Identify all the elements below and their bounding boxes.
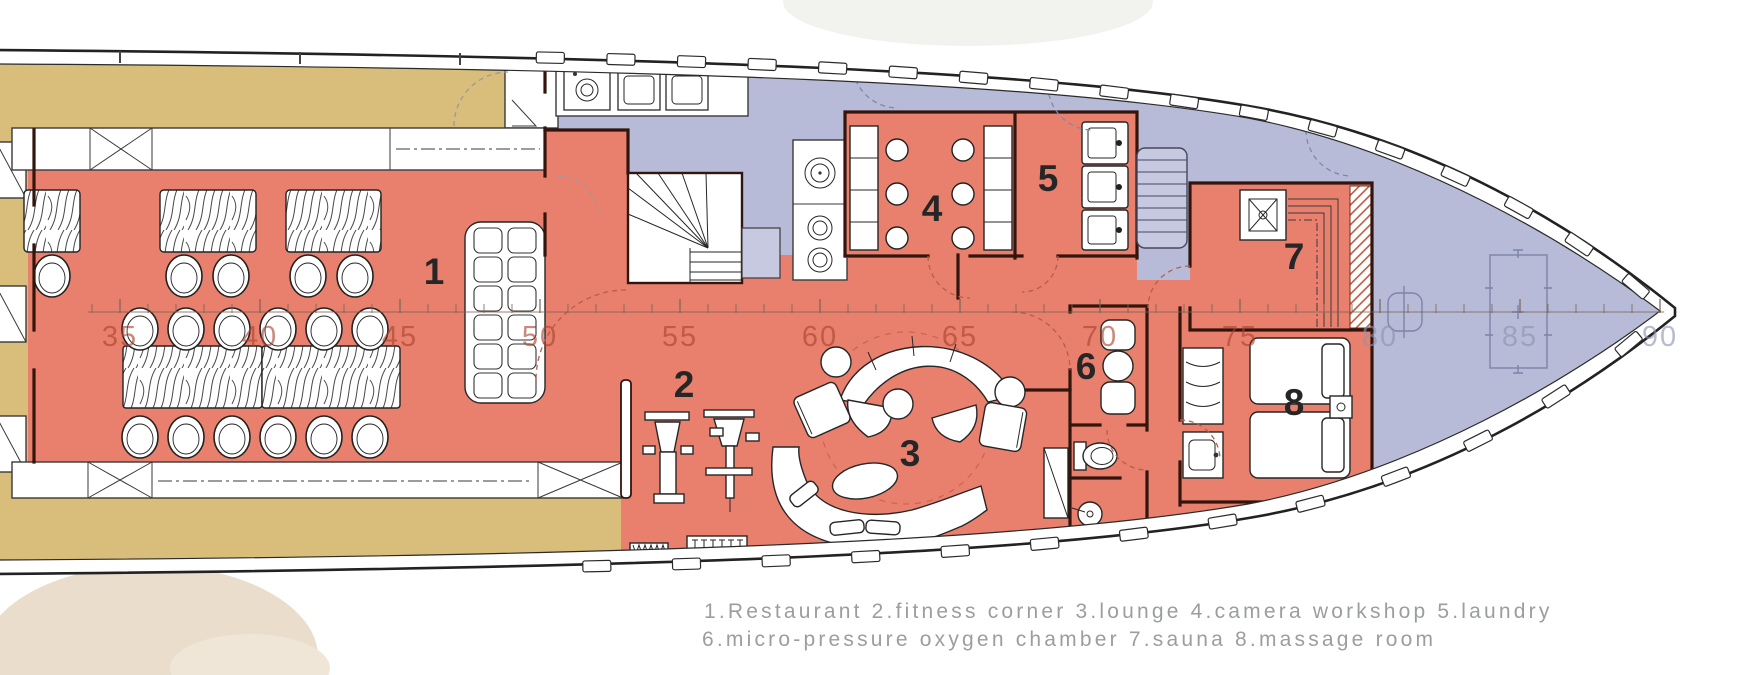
stool: [952, 227, 974, 249]
buffet-seat: [474, 257, 502, 282]
wardrobe: [1183, 348, 1223, 424]
ruler-number-85: 85: [1502, 321, 1538, 353]
nightstand: [1330, 396, 1352, 418]
stool: [886, 227, 908, 249]
dining-chair: [213, 255, 249, 297]
hull-window: [672, 558, 700, 570]
hull-window: [583, 560, 611, 572]
restaurant-top-cabinets: [12, 128, 545, 170]
workshop-table: [850, 126, 878, 250]
pouf: [883, 389, 913, 419]
recliner-seat: [1103, 351, 1133, 381]
room-label-3: 3: [900, 433, 921, 474]
armchair: [978, 402, 1027, 453]
dining-table: [286, 190, 381, 252]
buffet-seat: [474, 315, 502, 340]
grey-blob: [783, 0, 1153, 46]
room-label-6: 6: [1076, 346, 1097, 387]
dining-chair: [214, 416, 250, 458]
interior: [0, 40, 1700, 600]
ruler-number-50: 50: [522, 321, 558, 353]
long-dining-table: [123, 346, 262, 408]
pouf: [995, 377, 1025, 407]
hull-window: [677, 56, 705, 68]
buffet-seat: [474, 286, 502, 311]
ruler-number-80: 80: [1362, 321, 1398, 353]
sauna-heater: [1240, 190, 1286, 240]
ruler-number-40: 40: [242, 321, 278, 353]
hull-window: [889, 66, 918, 79]
long-dining-table: [262, 346, 400, 408]
stove-counter: [793, 140, 847, 280]
ruler-number-75: 75: [1222, 321, 1258, 353]
stool: [952, 183, 974, 205]
room-label-1: 1: [424, 251, 445, 292]
side-deck-top: [0, 60, 508, 128]
room-label-4: 4: [922, 188, 943, 229]
room-label-7: 7: [1284, 236, 1305, 277]
sofa-pillow: [866, 520, 901, 535]
sauna-insulated-wall: [1350, 186, 1372, 328]
ruler-number-65: 65: [942, 321, 978, 353]
floor-plan-drawing: 354045505560657075808590 12345678: [0, 0, 1752, 675]
stool: [886, 183, 908, 205]
dining-chair: [306, 308, 342, 350]
legend-line-2: 6.micro-pressure oxygen chamber 7.sauna …: [702, 628, 1436, 652]
room-label-2: 2: [674, 364, 695, 405]
laundry-washers: [1082, 122, 1128, 250]
hull-window: [851, 550, 880, 563]
dining-chair: [168, 308, 204, 350]
buffet-seat: [474, 228, 502, 253]
hull-window: [959, 71, 988, 84]
ruler-number-60: 60: [802, 321, 838, 353]
stool: [952, 139, 974, 161]
buffet-seat: [474, 373, 502, 398]
dining-chair: [166, 255, 202, 297]
buffet-seat: [474, 344, 502, 369]
buffet-seat: [508, 228, 536, 253]
dining-chair: [352, 416, 388, 458]
partition-wall: [621, 380, 631, 498]
dining-chair: [290, 255, 326, 297]
ruler-number-55: 55: [662, 321, 698, 353]
dining-chair: [34, 255, 70, 297]
buffet-seat: [508, 373, 536, 398]
room-label-5: 5: [1038, 158, 1059, 199]
pillow: [1322, 418, 1344, 472]
hull-window: [1030, 537, 1059, 551]
dining-chair: [260, 416, 296, 458]
buffet-seat: [508, 257, 536, 282]
stairs-to-lower-deck: [1137, 148, 1187, 248]
dining-chair: [168, 416, 204, 458]
stool: [886, 139, 908, 161]
dining-chair: [337, 255, 373, 297]
hull-window: [748, 58, 776, 70]
recliner-foot: [1101, 382, 1135, 414]
ruler-number-45: 45: [382, 321, 418, 353]
vanity-sink: [1183, 432, 1223, 478]
workshop-table: [984, 126, 1012, 250]
ruler-number-90: 90: [1642, 321, 1678, 353]
toilet: [1074, 442, 1117, 470]
pillow: [1322, 344, 1344, 398]
dining-chair: [122, 416, 158, 458]
hull-window: [941, 545, 970, 558]
dining-table: [160, 190, 256, 252]
left-edge-lockers: [0, 142, 26, 472]
restaurant-bottom-cabinets: [12, 462, 623, 498]
stair-landing: [742, 228, 780, 278]
hull-window: [762, 555, 790, 567]
room-label-8: 8: [1284, 382, 1305, 423]
hull-window: [607, 53, 635, 65]
floor-plan-stage: 354045505560657075808590 12345678 1.Rest…: [0, 0, 1752, 675]
dining-chair: [306, 416, 342, 458]
hull-window: [1029, 77, 1058, 91]
ruler-number-35: 35: [102, 321, 138, 353]
sofa-pillow: [829, 519, 864, 535]
hull-window: [536, 52, 564, 64]
legend-line-1: 1.Restaurant 2.fitness corner 3.lounge 4…: [704, 600, 1553, 624]
hull-window: [818, 62, 847, 75]
